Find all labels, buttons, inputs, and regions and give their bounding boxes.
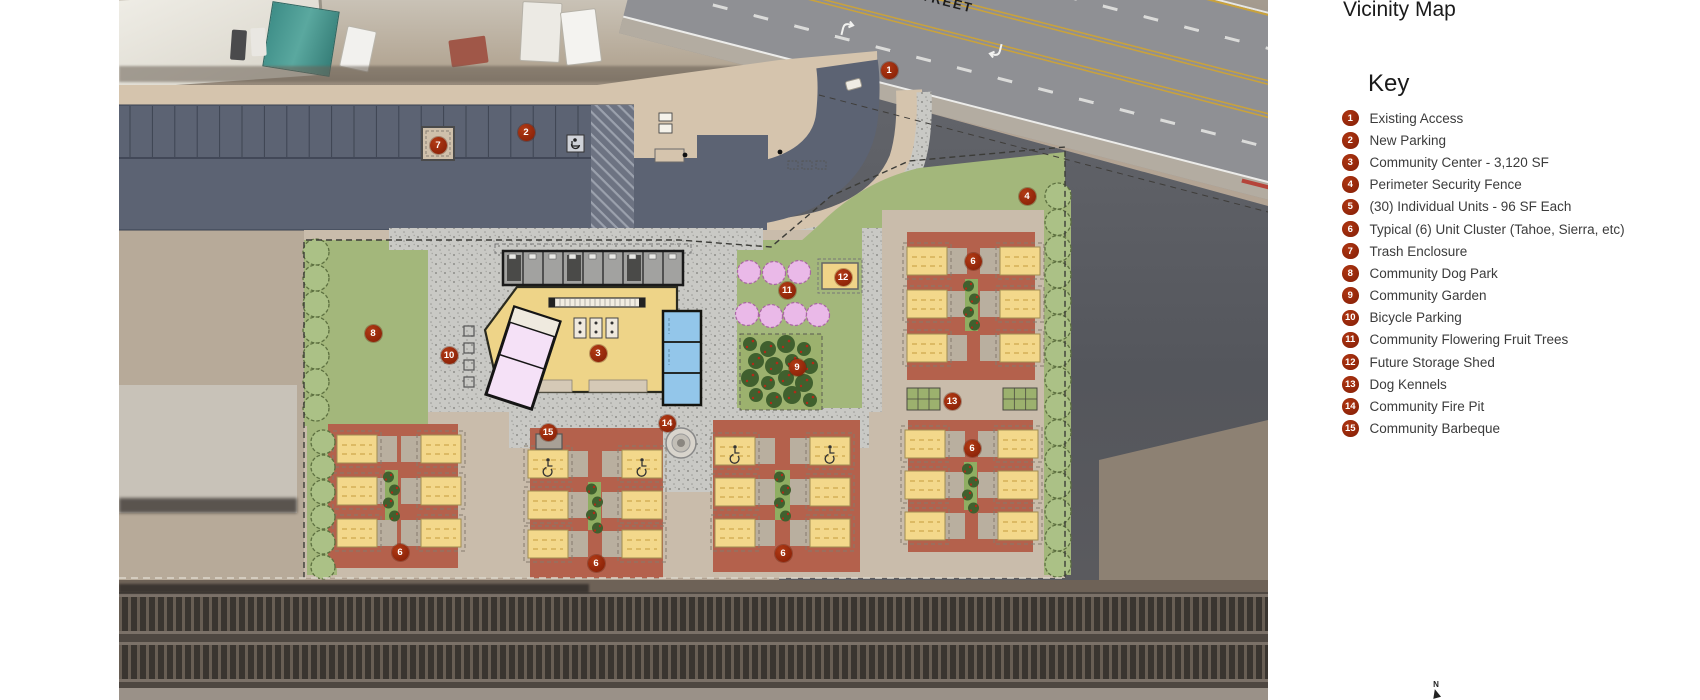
key-heading: Key xyxy=(1368,70,1409,98)
individual-unit xyxy=(907,247,947,275)
legend-number-badge: 2 xyxy=(1342,132,1359,149)
hatched-area xyxy=(591,105,634,230)
flowering-fruit-tree xyxy=(807,304,830,327)
legend-number-badge: 8 xyxy=(1342,265,1359,282)
individual-unit xyxy=(337,477,377,505)
individual-unit xyxy=(528,491,568,519)
flowering-fruit-tree xyxy=(763,262,786,285)
legend-item: 13Dog Kennels xyxy=(1342,373,1625,395)
legend-item: 8Community Dog Park xyxy=(1342,262,1625,284)
legend-number-badge: 5 xyxy=(1342,199,1359,216)
tree xyxy=(311,430,335,454)
flowering-fruit-tree xyxy=(760,305,783,328)
community-barbeque xyxy=(536,434,562,449)
individual-unit xyxy=(1000,247,1040,275)
legend-item: 2New Parking xyxy=(1342,129,1625,151)
legend-item: 3Community Center - 3,120 SF xyxy=(1342,151,1625,173)
tree xyxy=(1045,183,1071,209)
legend-label: Perimeter Security Fence xyxy=(1370,177,1522,192)
tree xyxy=(1045,393,1071,419)
future-storage-shed xyxy=(822,263,858,289)
individual-unit xyxy=(905,430,945,458)
legend-item: 1Existing Access xyxy=(1342,107,1625,129)
legend-label: Community Fire Pit xyxy=(1370,399,1485,414)
legend-label: Community Flowering Fruit Trees xyxy=(1370,332,1569,347)
legend-number-badge: 11 xyxy=(1342,332,1359,349)
legend-label: Community Center - 3,120 SF xyxy=(1370,155,1549,170)
legend-item: 11Community Flowering Fruit Trees xyxy=(1342,329,1625,351)
individual-unit xyxy=(998,512,1038,540)
legend-item: 9Community Garden xyxy=(1342,285,1625,307)
flowering-fruit-tree xyxy=(738,261,761,284)
individual-unit xyxy=(337,435,377,463)
individual-unit xyxy=(622,491,662,519)
tree xyxy=(1045,262,1071,288)
tree xyxy=(303,369,329,395)
legend-label: Dog Kennels xyxy=(1370,377,1447,392)
legend-label: Community Garden xyxy=(1370,288,1487,303)
flowering-fruit-tree xyxy=(736,303,759,326)
tree xyxy=(311,480,335,504)
individual-unit xyxy=(528,530,568,558)
tree xyxy=(303,343,329,369)
legend-label: Typical (6) Unit Cluster (Tahoe, Sierra,… xyxy=(1370,222,1625,237)
individual-unit xyxy=(810,478,850,506)
tree xyxy=(303,317,329,343)
individual-unit xyxy=(622,530,662,558)
legend-number-badge: 13 xyxy=(1342,376,1359,393)
legend-number-badge: 4 xyxy=(1342,176,1359,193)
legend-item: 15Community Barbeque xyxy=(1342,418,1625,440)
individual-unit xyxy=(810,519,850,547)
legend-item: 10Bicycle Parking xyxy=(1342,307,1625,329)
legend-label: Trash Enclosure xyxy=(1370,244,1468,259)
individual-unit xyxy=(1000,290,1040,318)
legend-label: Existing Access xyxy=(1370,111,1464,126)
page-title: Vicinity Map xyxy=(1343,0,1456,22)
legend-item: 4Perimeter Security Fence xyxy=(1342,174,1625,196)
tree xyxy=(1045,288,1071,314)
individual-unit xyxy=(907,334,947,362)
legend-item: 7Trash Enclosure xyxy=(1342,240,1625,262)
individual-unit xyxy=(715,519,755,547)
tree xyxy=(1045,525,1071,551)
legend-number-badge: 9 xyxy=(1342,287,1359,304)
north-arrow: N xyxy=(1432,680,1440,698)
legend-panel: Vicinity Map Key 1Existing Access2New Pa… xyxy=(1268,0,1700,700)
legend-label: Future Storage Shed xyxy=(1370,355,1495,370)
legend-label: New Parking xyxy=(1370,133,1447,148)
tree xyxy=(1045,315,1071,341)
legend-number-badge: 3 xyxy=(1342,154,1359,171)
legend-number-badge: 1 xyxy=(1342,110,1359,127)
tree xyxy=(303,265,329,291)
flowering-fruit-tree xyxy=(784,303,807,326)
tree xyxy=(1045,446,1071,472)
tree xyxy=(1045,341,1071,367)
individual-unit xyxy=(715,478,755,506)
tree xyxy=(1045,499,1071,525)
legend-number-badge: 6 xyxy=(1342,221,1359,238)
individual-unit xyxy=(907,290,947,318)
mail-kiosk xyxy=(659,113,672,121)
site-plan-map: STREET 123466666789101112131415 xyxy=(119,0,1268,700)
legend-item: 6Typical (6) Unit Cluster (Tahoe, Sierra… xyxy=(1342,218,1625,240)
individual-unit xyxy=(1000,334,1040,362)
north-arrow-icon xyxy=(1431,688,1441,699)
tree xyxy=(1045,209,1071,235)
legend-item: 5(30) Individual Units - 96 SF Each xyxy=(1342,196,1625,218)
handicap-parking-icon xyxy=(567,135,584,152)
individual-unit xyxy=(905,512,945,540)
tree xyxy=(1045,367,1071,393)
tree xyxy=(1045,472,1071,498)
key-list: 1Existing Access2New Parking3Community C… xyxy=(1342,107,1625,440)
tree xyxy=(303,291,329,317)
legend-number-badge: 7 xyxy=(1342,243,1359,260)
legend-number-badge: 15 xyxy=(1342,420,1359,437)
flowering-fruit-tree xyxy=(788,261,811,284)
legend-number-badge: 12 xyxy=(1342,354,1359,371)
vicinity-map-page: STREET 123466666789101112131415 Vicinity… xyxy=(0,0,1700,700)
individual-unit xyxy=(421,435,461,463)
parking-bay xyxy=(697,135,768,161)
site-plan-drawing xyxy=(119,0,1268,700)
individual-unit xyxy=(421,477,461,505)
individual-unit xyxy=(905,471,945,499)
tree xyxy=(1045,420,1071,446)
tree xyxy=(311,455,335,479)
legend-label: Bicycle Parking xyxy=(1370,310,1462,325)
tree xyxy=(303,395,329,421)
tree xyxy=(311,530,335,554)
legend-label: Community Barbeque xyxy=(1370,421,1501,436)
legend-label: (30) Individual Units - 96 SF Each xyxy=(1370,199,1572,214)
tree xyxy=(1045,236,1071,262)
individual-unit xyxy=(337,519,377,547)
individual-unit xyxy=(998,471,1038,499)
tree xyxy=(303,239,329,265)
parking-drive-aisle xyxy=(119,158,767,230)
legend-item: 12Future Storage Shed xyxy=(1342,351,1625,373)
individual-unit xyxy=(998,430,1038,458)
tree xyxy=(311,505,335,529)
legend-label: Community Dog Park xyxy=(1370,266,1498,281)
tree xyxy=(311,555,335,579)
legend-number-badge: 14 xyxy=(1342,398,1359,415)
individual-unit xyxy=(421,519,461,547)
legend-number-badge: 10 xyxy=(1342,310,1359,327)
legend-item: 14Community Fire Pit xyxy=(1342,395,1625,417)
tree xyxy=(1045,551,1071,577)
trash-enclosure xyxy=(422,127,454,160)
